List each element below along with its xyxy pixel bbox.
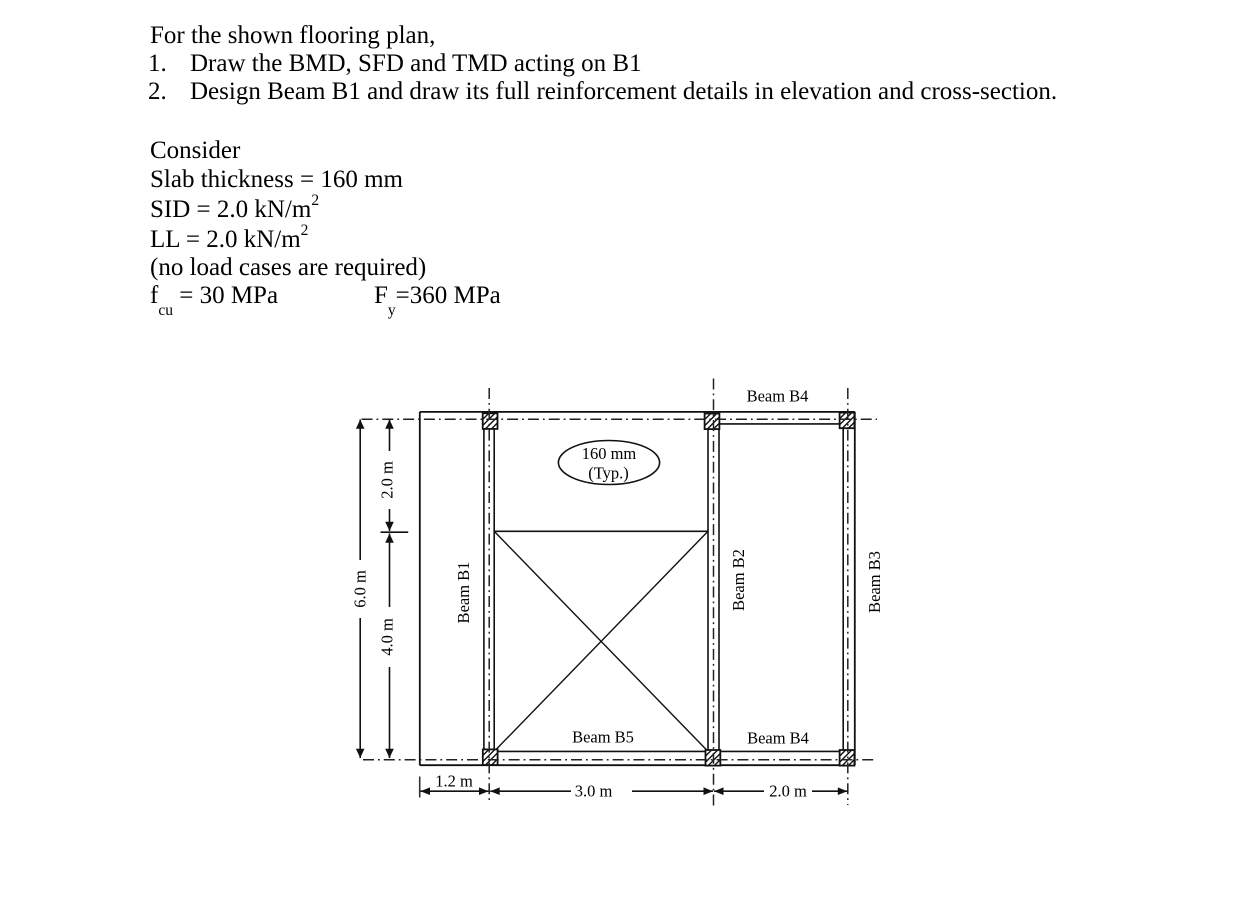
svg-text:2.0 m: 2.0 m	[769, 782, 807, 801]
svg-text:6.0 m: 6.0 m	[350, 570, 369, 608]
svg-text:Beam B3: Beam B3	[865, 551, 884, 613]
svg-text:Beam B1: Beam B1	[454, 562, 473, 624]
svg-text:Beam B4: Beam B4	[747, 729, 809, 748]
svg-text:Beam B5: Beam B5	[572, 728, 634, 747]
svg-text:4.0 m: 4.0 m	[377, 618, 396, 656]
svg-text:Beam B4: Beam B4	[747, 386, 809, 405]
svg-text:2.0 m: 2.0 m	[377, 461, 396, 499]
svg-text:3.0 m: 3.0 m	[575, 782, 613, 801]
svg-text:1.2 m: 1.2 m	[435, 771, 473, 790]
svg-text:Beam B2: Beam B2	[729, 549, 748, 611]
svg-text:160 mm: 160 mm	[582, 444, 637, 463]
svg-text:(Typ.): (Typ.)	[588, 464, 629, 483]
